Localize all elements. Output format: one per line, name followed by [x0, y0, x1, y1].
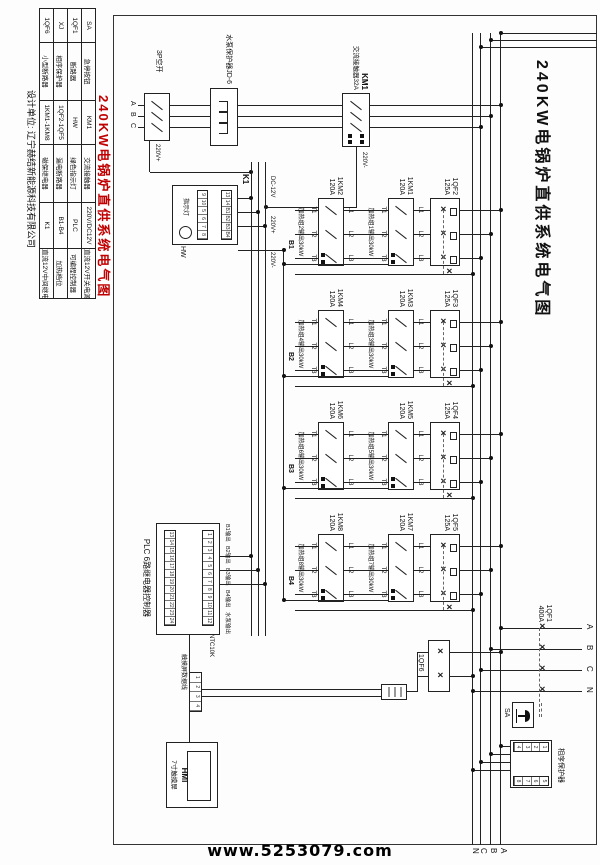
contact-icon	[350, 101, 362, 110]
breaker-pole-icon: ×	[536, 623, 546, 629]
legend-cell: SA	[82, 9, 96, 43]
plc-strip-top: 123456789101112	[202, 530, 214, 626]
contact-icon	[325, 454, 337, 463]
wire	[295, 386, 473, 387]
contact-icon	[325, 590, 337, 599]
breaker-tie-dashed	[443, 546, 444, 610]
wire	[295, 610, 473, 611]
thermal-element-icon	[219, 101, 228, 112]
contact-icon	[395, 454, 407, 463]
junction-dot	[489, 568, 493, 572]
plc-label: PLC 6路继电器控制器	[141, 503, 150, 653]
contact-icon	[395, 478, 407, 487]
terminal-cell: 14	[222, 199, 231, 207]
contact-icon	[395, 254, 407, 263]
breaker-terminal	[450, 256, 457, 264]
junction-dot	[499, 432, 503, 436]
breaker-terminal	[450, 456, 457, 464]
coil-wire	[284, 488, 388, 489]
estop-label: SA	[502, 708, 510, 717]
thermal-element-icon	[219, 112, 228, 123]
terminal-cell: 3	[523, 743, 532, 751]
hmi-cable-label: 触摸屏数据线	[179, 654, 186, 690]
breaker-terminal	[450, 208, 457, 216]
pump-protector-label: 水泵保护器JD-6	[224, 6, 232, 84]
contactor-lower-box	[318, 198, 344, 266]
estop-box	[512, 702, 534, 728]
contact-icon	[350, 123, 362, 132]
heater-output-label: 加热组6输出30kW	[297, 418, 306, 494]
terminal-cell: 2	[531, 743, 540, 751]
terminal-cell: 5	[203, 562, 213, 570]
terminal-cell: 5	[198, 207, 207, 215]
contactor-upper-box	[388, 534, 414, 602]
wire	[220, 556, 251, 557]
terminal-cell: 3	[203, 547, 213, 555]
coil-terminal	[321, 365, 325, 369]
wire	[138, 116, 491, 117]
terminal-cell: 19	[165, 578, 175, 586]
wire	[481, 670, 582, 671]
terminal-cell: 8	[514, 777, 523, 785]
terminal-cell: 4	[514, 743, 523, 751]
junction-dot	[479, 368, 483, 372]
junction-dot	[489, 647, 493, 651]
wire	[220, 584, 265, 585]
pump-contactor-label: KM1 交流接触器32A	[352, 14, 368, 90]
thermal-element-icon	[219, 123, 228, 134]
junction-dot	[249, 554, 253, 558]
terminal-cell: 3	[190, 692, 201, 702]
t-terminals: T1T2T3	[310, 422, 316, 494]
indicator-light-icon	[179, 226, 192, 239]
small-module-box	[381, 684, 407, 700]
contact-icon	[395, 206, 407, 215]
pump-out-a: A	[128, 101, 136, 106]
wire	[295, 274, 473, 275]
wire	[417, 652, 418, 691]
bus-label-a: A	[498, 848, 507, 853]
heater-output-label: 加热组7输出30kW	[367, 530, 376, 606]
terminal-cell: 9	[198, 191, 207, 199]
terminal-cell: 6	[531, 777, 540, 785]
contact-icon	[325, 542, 337, 551]
junction-dot	[479, 256, 483, 260]
plc-strip-bottom: 131415161718192021222324	[164, 530, 176, 626]
t-terminals: T1T2T3	[380, 534, 386, 606]
terminal-label-c: C	[584, 666, 593, 672]
l-terminals: L1L2L3	[417, 310, 423, 382]
heater-output-label: 加热组2输出30kW	[297, 194, 306, 270]
l-terminals: L1L2L3	[347, 310, 353, 382]
contact-icon	[395, 430, 407, 439]
coil-terminal	[321, 477, 325, 481]
estop-link-dashed	[541, 703, 542, 717]
junction-dot	[479, 45, 483, 49]
l-terminals: L1L2L3	[417, 534, 423, 606]
tap-pos-label: 220V+	[153, 144, 160, 162]
contactor-lower-label: 1KM8 120A	[327, 504, 343, 531]
contactor-lower-box	[318, 422, 344, 490]
k1-strip-top: 1314B1B2B3B4	[221, 190, 232, 240]
terminal-cell: B2输出	[224, 546, 232, 564]
wire	[450, 676, 473, 677]
breaker-pole-icon: ×	[536, 665, 546, 671]
t-terminals: T1T2T3	[380, 422, 386, 494]
group-breaker-label: 1QF3 125A	[442, 280, 458, 307]
terminal-label-b: B	[584, 645, 593, 650]
contactor-lower-box	[318, 310, 344, 378]
contact-icon	[325, 318, 337, 327]
coil-terminal	[391, 260, 395, 264]
junction-dot	[499, 626, 503, 630]
heater-output-label: 加热组5输出30kW	[367, 418, 376, 494]
contact-icon	[325, 478, 337, 487]
terminal-cell: 13	[165, 531, 175, 539]
junction-dot	[256, 210, 260, 214]
junction-dot	[471, 689, 475, 693]
junction-dot	[263, 582, 267, 586]
contactor-upper-box	[388, 422, 414, 490]
wire	[220, 570, 258, 571]
heater-output-label: 加热组8输出30kW	[297, 530, 306, 606]
coil-terminal	[348, 140, 352, 144]
junction-dot	[479, 480, 483, 484]
terminal-cell: 水泵输出	[224, 612, 232, 634]
breaker-pole-icon: ×	[437, 254, 447, 260]
wire	[202, 696, 381, 697]
breaker-pole-icon: ×	[437, 206, 447, 212]
coil-terminal	[360, 134, 364, 138]
contact-icon	[325, 230, 337, 239]
wire	[238, 212, 258, 213]
control-line	[258, 162, 259, 636]
junction-dot	[471, 674, 475, 678]
terminal-cell: B4输出	[224, 590, 232, 608]
junction-dot	[489, 752, 493, 756]
wire	[450, 652, 501, 653]
switch-icon	[151, 112, 163, 121]
wire	[138, 127, 481, 128]
junction-dot	[256, 568, 260, 572]
module-print	[388, 687, 390, 697]
terminal-cell: 12	[203, 617, 213, 625]
terminal-cell: 10	[203, 601, 213, 609]
junction-dot	[489, 456, 493, 460]
junction-dot	[479, 592, 483, 596]
contactor-lower-box	[318, 534, 344, 602]
terminal-cell: 16	[165, 554, 175, 562]
contact-icon	[325, 254, 337, 263]
wire	[149, 141, 150, 172]
t-terminals: T1T2T3	[310, 198, 316, 270]
wire	[138, 105, 501, 106]
terminal-cell: 20	[165, 586, 175, 594]
terminal-cell: 7	[523, 777, 532, 785]
pump-contactor-box	[342, 93, 370, 147]
contact-icon	[395, 542, 407, 551]
legend-row: XJ相序保护器 1QF2-1QF5漏电断路器 B1-B4加热档位	[54, 9, 68, 299]
heater-output-label: 加热组3输出30kW	[367, 306, 376, 382]
group-breaker-box: × × ×	[430, 534, 460, 602]
junction-dot	[479, 668, 483, 672]
hmi-name: HMI	[179, 742, 188, 808]
junction-dot	[499, 650, 503, 654]
contact-icon	[325, 430, 337, 439]
qf6-box: × ×	[428, 640, 450, 692]
pump-breaker-label: 3P空开	[154, 50, 162, 73]
terminal-cell: 1	[190, 673, 201, 683]
switch-icon	[151, 123, 163, 132]
terminal-cell: 14	[165, 539, 175, 547]
contactor-upper-box	[388, 310, 414, 378]
junction-dot	[499, 31, 503, 35]
legend-table: SA急停按钮 KM1交流接触器 220V/DC12V直流12V开关电源 1QF1…	[39, 8, 96, 299]
junction-dot	[471, 384, 475, 388]
terminal-cell: B4	[222, 231, 231, 239]
terminal-cell: 15	[165, 547, 175, 555]
hw-label: HW	[178, 246, 186, 258]
contactor-upper-label: 1KM3 120A	[397, 280, 413, 307]
wire	[418, 676, 428, 677]
system-title-red: 240KW电锅炉直供系统电气图	[95, 95, 114, 298]
wire	[295, 498, 473, 499]
group-breaker-label: 1QF4 125A	[442, 392, 458, 419]
junction-dot	[499, 544, 503, 548]
breaker-terminal	[450, 592, 457, 600]
wire	[491, 40, 597, 41]
hmi-screen	[187, 751, 211, 801]
terminal-label-a: A	[584, 624, 593, 629]
wire	[238, 226, 265, 227]
bus-label-n: N	[470, 848, 479, 854]
group-breaker-box: × × ×	[430, 422, 460, 490]
wire	[481, 762, 510, 763]
junction-dot	[282, 598, 286, 602]
junction-dot	[489, 344, 493, 348]
terminal-cell: 2	[190, 683, 201, 693]
coil-terminal	[391, 365, 395, 369]
terminal-cell: 1	[203, 531, 213, 539]
estop-base	[516, 709, 517, 723]
wire	[202, 689, 381, 690]
contact-icon	[395, 342, 407, 351]
breaker-pole-icon: ×	[536, 686, 546, 692]
breaker-pole-icon: ×	[437, 590, 447, 596]
contact-icon	[325, 206, 337, 215]
t-terminals: T1T2T3	[380, 198, 386, 270]
wire	[473, 691, 582, 692]
contact-icon	[325, 566, 337, 575]
switch-icon	[151, 101, 163, 110]
breaker-pole-icon: ×	[443, 380, 453, 386]
contactor-upper-label: 1KM7 120A	[397, 504, 413, 531]
group-breaker-label: 1QF5 125A	[442, 504, 458, 531]
wire	[473, 770, 510, 771]
coil-wire	[284, 264, 388, 265]
terminal-cell: 4	[203, 554, 213, 562]
breaker-pole-icon: ×	[437, 478, 447, 484]
l-terminals: L1L2L3	[347, 198, 353, 270]
wire	[481, 47, 597, 48]
terminal-cell: 6	[198, 215, 207, 223]
control-line	[265, 162, 266, 636]
t-terminals: T1T2T3	[310, 534, 316, 606]
group-breaker-box: × × ×	[430, 310, 460, 378]
contact-icon	[325, 342, 337, 351]
l-terminals: L1L2L3	[417, 198, 423, 270]
breaker-pole-icon: ×	[437, 230, 447, 236]
terminal-cell: 8	[198, 231, 207, 239]
contact-icon	[395, 566, 407, 575]
terminal-cell: 1	[540, 743, 549, 751]
k1-label: K1	[240, 174, 249, 184]
junction-dot	[471, 496, 475, 500]
contact-icon	[395, 318, 407, 327]
terminal-cell: 5	[540, 777, 549, 785]
junction-dot	[489, 114, 493, 118]
junction-dot	[471, 608, 475, 612]
contact-icon	[325, 366, 337, 375]
pump-out-b: B	[128, 112, 136, 117]
b-level-label: B3	[287, 464, 294, 473]
terminal-label-n: N	[584, 687, 593, 693]
k1-strip-bottom: 9105678	[197, 190, 208, 240]
contact-icon	[395, 590, 407, 599]
estop-stem	[518, 715, 525, 717]
l-terminals: L1L2L3	[347, 534, 353, 606]
junction-dot	[471, 768, 475, 772]
heater-group: × × × × 1QF5 125A L1L2L3 T1T2T3 1KM7 120…	[270, 504, 505, 616]
b-level-label: B1	[287, 240, 294, 249]
group-breaker-box: × × ×	[430, 198, 460, 266]
xj-terminals-left: 1234	[513, 742, 549, 752]
wire	[150, 172, 251, 173]
breaker-terminal	[450, 344, 457, 352]
breaker-pole-icon: ×	[434, 648, 444, 654]
coil-terminal	[321, 589, 325, 593]
legend-row: SA急停按钮 KM1交流接触器 220V/DC12V直流12V开关电源	[82, 9, 96, 299]
estop-mushroom-icon	[525, 710, 530, 722]
junction-dot	[249, 196, 253, 200]
junction-dot	[499, 103, 503, 107]
control-line	[251, 162, 252, 636]
contactor-upper-box	[388, 198, 414, 266]
junction-dot	[282, 374, 286, 378]
pump-out-c: C	[128, 123, 136, 128]
terminal-cell: 7	[203, 578, 213, 586]
pump-breaker-box	[144, 93, 170, 141]
heater-group: × × × × 1QF4 125A L1L2L3 T1T2T3 1KM5 120…	[270, 392, 505, 504]
coil-terminal	[391, 477, 395, 481]
schematic-page: 240KW电锅炉直供系统电气图 A B C N A B C N × × × × …	[0, 0, 600, 865]
breaker-terminal	[450, 232, 457, 240]
coil-terminal	[391, 596, 395, 600]
coil-terminal	[348, 134, 352, 138]
wire	[407, 691, 418, 692]
terminal-cell: 10	[198, 199, 207, 207]
breaker-terminal	[450, 320, 457, 328]
breaker-terminal	[450, 432, 457, 440]
contactor-upper-label: 1KM5 120A	[397, 392, 413, 419]
breaker-pole-icon: ×	[437, 342, 447, 348]
junction-dot	[479, 125, 483, 129]
junction-dot	[489, 38, 493, 42]
terminal-cell: 11	[203, 609, 213, 617]
breaker-pole-icon: ×	[437, 318, 447, 324]
l-terminals: L1L2L3	[417, 422, 423, 494]
contactor-lower-label: 1KM6 120A	[327, 392, 343, 419]
xj-terminals-right: 5678	[513, 776, 549, 786]
coil-terminal	[391, 372, 395, 376]
breaker-pole-icon: ×	[437, 542, 447, 548]
breaker-pole-icon: ×	[443, 268, 453, 274]
coil-terminal	[360, 140, 364, 144]
module-print	[400, 687, 402, 697]
junction-dot	[499, 320, 503, 324]
coil-terminal	[391, 484, 395, 488]
terminal-cell: 4	[190, 702, 201, 712]
wire	[418, 652, 428, 653]
breaker-terminal	[450, 568, 457, 576]
coil-neg-label: 220V-	[360, 152, 367, 168]
hmi-label: 7寸触摸屏	[170, 742, 177, 808]
terminal-cell: 2	[203, 539, 213, 547]
breaker-pole-icon: ×	[437, 366, 447, 372]
breaker-pole-icon: ×	[443, 604, 453, 610]
b-level-label: B2	[287, 352, 294, 361]
breaker-pole-icon: ×	[434, 672, 444, 678]
pump-protector-box	[210, 88, 238, 146]
junction-dot	[489, 232, 493, 236]
breaker-tie-dashed	[539, 628, 540, 717]
heater-output-label: 加热组4输出30kW	[297, 306, 306, 382]
junction-dot	[282, 262, 286, 266]
junction-dot	[471, 272, 475, 276]
coil-terminal	[391, 589, 395, 593]
junction-dot	[282, 486, 286, 490]
junction-dot	[499, 744, 503, 748]
legend-row: 1QF6小型断路器 1KM1-1KM8磁保继电器 K1直流12V中间继电器	[40, 9, 54, 299]
terminal-cell: 6	[203, 570, 213, 578]
heater-group: × × × × 1QF3 125A L1L2L3 T1T2T3 1KM3 120…	[270, 280, 505, 392]
plc-output-labels: B1输出B2输出B3输出B4输出水泵输出	[224, 524, 232, 634]
terminal-cell: B2	[222, 215, 231, 223]
sensor-strip: 1234	[189, 672, 202, 712]
indicator-light-label: 指示灯	[181, 198, 188, 216]
breaker-pole-icon: ×	[443, 492, 453, 498]
breaker-pole-icon: ×	[437, 566, 447, 572]
t-terminals: T1T2T3	[310, 310, 316, 382]
coil-wire	[284, 600, 388, 601]
terminal-cell: 24	[165, 617, 175, 625]
terminal-cell: 17	[165, 562, 175, 570]
terminal-cell: B1	[222, 207, 231, 215]
wire	[491, 754, 510, 755]
coil-terminal	[321, 253, 325, 257]
terminal-cell: 18	[165, 570, 175, 578]
terminal-cell: 21	[165, 594, 175, 602]
page-title: 240KW电锅炉直供系统电气图	[532, 60, 556, 318]
designer-line: 设计单位: 辽宁赫结新能源科技有限公司	[25, 90, 38, 248]
bus-label-b: B	[488, 848, 497, 853]
junction-dot	[479, 760, 483, 764]
junction-dot	[263, 224, 267, 228]
breaker-terminal	[450, 544, 457, 552]
breaker-pole-icon: ×	[536, 644, 546, 650]
breaker-terminal	[450, 368, 457, 376]
breaker-terminal	[450, 480, 457, 488]
